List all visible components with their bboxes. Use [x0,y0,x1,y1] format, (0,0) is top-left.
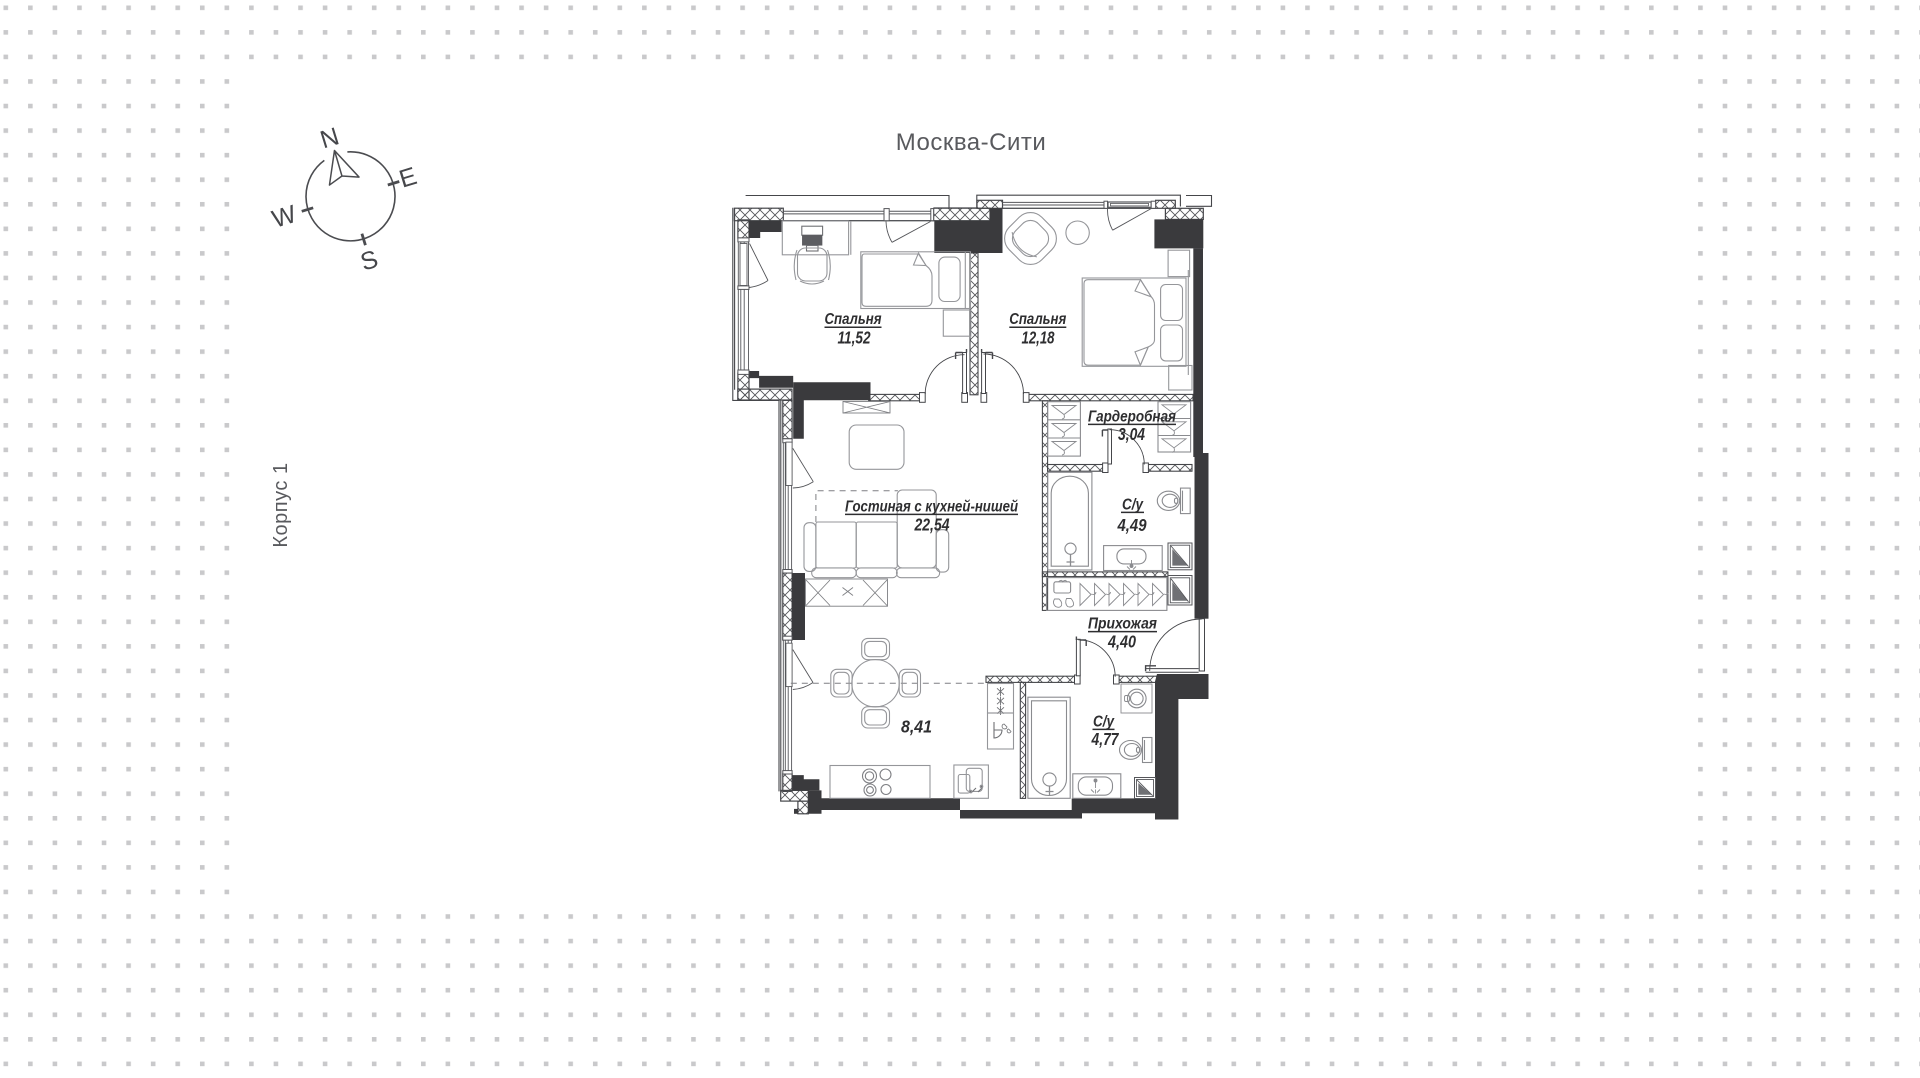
svg-text:Гостиная с кухней-нишей: Гостиная с кухней-нишей [845,499,1018,516]
svg-text:Корпус 1: Корпус 1 [270,462,292,547]
svg-text:Гардеробная: Гардеробная [1088,409,1176,426]
svg-text:Спальня: Спальня [825,311,882,328]
svg-text:12,18: 12,18 [1022,328,1055,348]
svg-text:Прихожая: Прихожая [1088,616,1157,633]
svg-text:22,54: 22,54 [914,515,950,535]
svg-text:Спальня: Спальня [1009,311,1066,328]
svg-text:8,41: 8,41 [901,717,932,737]
svg-text:4,40: 4,40 [1107,632,1136,652]
svg-text:4,77: 4,77 [1091,729,1120,749]
svg-text:С/у: С/у [1122,497,1144,514]
svg-text:С/у: С/у [1093,714,1115,731]
svg-text:11,52: 11,52 [838,328,871,348]
svg-text:Москва-Сити: Москва-Сити [896,129,1047,156]
svg-text:3,04: 3,04 [1118,424,1145,444]
svg-text:4,49: 4,49 [1117,515,1147,535]
